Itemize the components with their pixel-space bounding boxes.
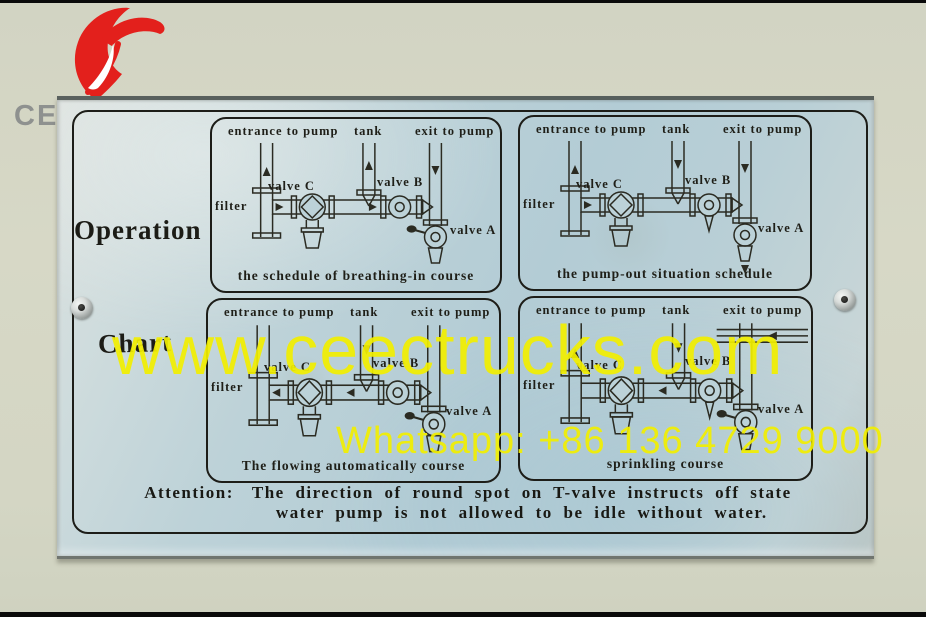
label-valve-a: valve A [450,224,496,237]
pipe-diagram-sprinkling [520,298,811,479]
label-valve-c: valve C [576,178,623,191]
top-black-strip [0,0,926,3]
label-entrance-to-pump: entrance to pump [228,125,338,138]
label-tank: tank [354,125,382,138]
label-valve-a: valve A [446,405,492,418]
attention-line-2: water pump is not allowed to be idle wit… [252,503,792,523]
pipe-diagram-flowing-auto [208,300,499,481]
label-filter: filter [215,200,247,213]
panel-flowing-auto: entrance to pump tank exit to pump valve… [206,298,501,483]
panel-breathing-in: entrance to pump tank exit to pump valve… [210,117,502,293]
label-valve-c: valve C [264,361,311,374]
ceec-logo-icon [58,4,168,100]
label-exit-to-pump: exit to pump [411,306,490,319]
label-valve-a: valve A [758,403,804,416]
attention-label: Attention: [144,483,234,503]
label-exit-to-pump: exit to pump [723,304,802,317]
label-valve-b: valve B [373,357,419,370]
label-exit-to-pump: exit to pump [723,123,802,136]
label-tank: tank [350,306,378,319]
panel-caption: sprinkling course [520,456,811,472]
pipe-diagram-breathing-in [212,119,500,291]
rivet-left-icon [71,297,93,319]
label-entrance-to-pump: entrance to pump [536,123,646,136]
label-valve-c: valve C [268,180,315,193]
rivet-right-icon [834,289,856,311]
label-filter: filter [211,381,243,394]
panel-caption: the schedule of breathing-in course [212,268,500,284]
bottom-black-strip [0,612,926,617]
label-valve-b: valve B [377,176,423,189]
photo-background: { "colors": { "accent_red": "#e3201c", "… [0,0,926,617]
label-exit-to-pump: exit to pump [415,125,494,138]
label-filter: filter [523,198,555,211]
label-entrance-to-pump: entrance to pump [224,306,334,319]
label-filter: filter [523,379,555,392]
label-entrance-to-pump: entrance to pump [536,304,646,317]
side-label-operation: Operation [74,215,202,246]
attention-text: The direction of round spot on T-valve i… [252,483,792,522]
panel-caption: The flowing automatically course [208,458,499,474]
panel-caption: the pump-out situation schedule [520,266,810,282]
attention-line-1: The direction of round spot on T-valve i… [252,483,792,503]
label-valve-c: valve C [576,359,623,372]
label-valve-b: valve B [685,174,731,187]
label-valve-a: valve A [758,222,804,235]
label-tank: tank [662,123,690,136]
label-valve-b: valve B [685,355,731,368]
panel-sprinkling: entrance to pump tank exit to pump valve… [518,296,813,481]
side-label-chart: Chart [98,327,173,360]
panel-pump-out: entrance to pump tank exit to pump valve… [518,115,812,291]
label-tank: tank [662,304,690,317]
pipe-diagram-pump-out [520,117,810,289]
attention-note: Attention: The direction of round spot o… [82,483,854,522]
